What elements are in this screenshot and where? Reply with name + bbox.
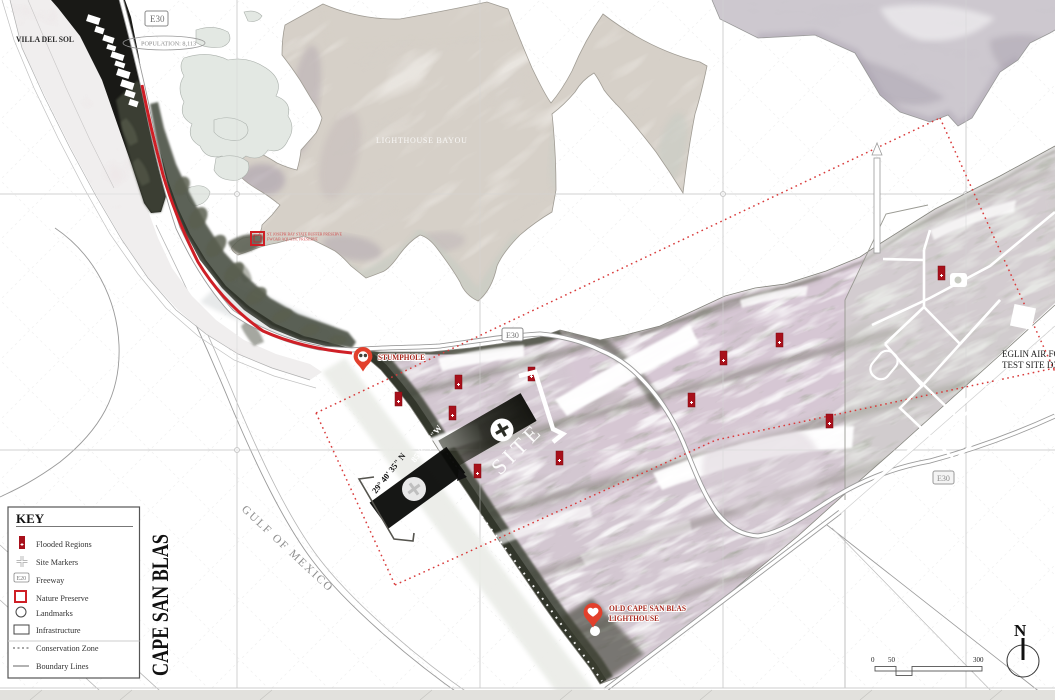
svg-text:EGLIN AIR FOR: EGLIN AIR FOR (1002, 349, 1055, 359)
svg-text:50: 50 (888, 656, 896, 664)
svg-text:Flooded Regions: Flooded Regions (36, 540, 92, 549)
svg-text:Conservation Zone: Conservation Zone (36, 644, 99, 653)
svg-text:OLD CAPE SAN BLAS: OLD CAPE SAN BLAS (609, 603, 686, 613)
svg-text:Boundary Lines: Boundary Lines (36, 662, 89, 671)
svg-text:E30: E30 (506, 331, 519, 340)
svg-text:ST. JOSEPH BAY STATE BUFFER PR: ST. JOSEPH BAY STATE BUFFER PRESERVE (267, 233, 343, 237)
svg-text:0: 0 (871, 656, 875, 664)
svg-text:CAPE SAN BLAS: CAPE SAN BLAS (148, 534, 173, 676)
svg-text:E30: E30 (150, 14, 165, 24)
svg-text:Infrastructure: Infrastructure (36, 626, 81, 635)
svg-text:LIGHTHOUSE BAYOU: LIGHTHOUSE BAYOU (376, 136, 468, 145)
svg-text:N: N (1014, 621, 1027, 640)
svg-text:E30: E30 (937, 474, 950, 483)
svg-text:Site Markers: Site Markers (36, 558, 78, 567)
svg-text:E20: E20 (17, 576, 27, 582)
svg-text:Landmarks: Landmarks (36, 609, 73, 618)
svg-text:300: 300 (973, 656, 984, 664)
svg-text:KEY: KEY (16, 511, 45, 526)
svg-text:STUMPHOLE: STUMPHOLE (378, 352, 425, 362)
svg-text:TEST SITE D3: TEST SITE D3 (1002, 360, 1055, 370)
svg-text:VILLA DEL SOL: VILLA DEL SOL (16, 34, 74, 44)
svg-text:LIGHTHOUSE: LIGHTHOUSE (609, 613, 659, 623)
svg-text:FWC&B AQUATIC PRESERVE: FWC&B AQUATIC PRESERVE (267, 238, 318, 242)
svg-text:Freeway: Freeway (36, 576, 65, 585)
svg-text:Nature Preserve: Nature Preserve (36, 594, 89, 603)
svg-text:POPULATION: 8,113: POPULATION: 8,113 (141, 41, 196, 48)
